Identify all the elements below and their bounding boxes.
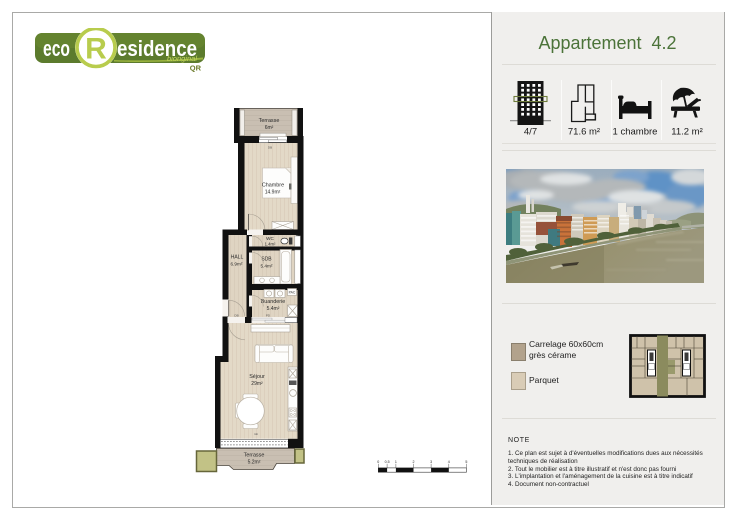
svg-text:6m²: 6m² xyxy=(265,125,274,131)
svg-text:71.6 m²: 71.6 m² xyxy=(568,127,600,138)
svg-text:6.9m²: 6.9m² xyxy=(231,262,243,267)
svg-text:DB: DB xyxy=(234,314,238,318)
svg-text:Terrasse: Terrasse xyxy=(259,118,280,124)
svg-text:0.5: 0.5 xyxy=(385,460,390,464)
svg-text:5.2m²: 5.2m² xyxy=(248,459,261,465)
svg-text:5.4m²: 5.4m² xyxy=(261,264,273,269)
svg-text:0: 0 xyxy=(377,460,379,464)
svg-text:1.4m²: 1.4m² xyxy=(265,241,276,246)
svg-text:mb: mb xyxy=(254,432,258,436)
svg-text:5.4m²: 5.4m² xyxy=(267,306,280,312)
svg-text:HALL: HALL xyxy=(231,255,244,261)
svg-text:DB: DB xyxy=(268,145,272,149)
svg-text:3: 3 xyxy=(430,460,432,464)
svg-text:WC: WC xyxy=(266,236,274,241)
svg-text:Chambre: Chambre xyxy=(262,183,284,189)
svg-text:PAC: PAC xyxy=(289,291,296,295)
svg-text:1: 1 xyxy=(395,460,397,464)
svg-text:29m²: 29m² xyxy=(251,381,263,387)
svg-text:11.2 m²: 11.2 m² xyxy=(671,127,703,138)
svg-text:Buanderie: Buanderie xyxy=(261,299,286,305)
svg-text:4: 4 xyxy=(448,460,450,464)
svg-text:5: 5 xyxy=(465,460,467,464)
svg-text:4/7: 4/7 xyxy=(524,127,537,138)
svg-text:2: 2 xyxy=(413,460,415,464)
svg-text:Terrasse: Terrasse xyxy=(244,453,265,459)
svg-text:14.9m²: 14.9m² xyxy=(265,190,281,196)
svg-text:1 chambre: 1 chambre xyxy=(613,127,658,138)
svg-text:Séjour: Séjour xyxy=(249,374,265,380)
